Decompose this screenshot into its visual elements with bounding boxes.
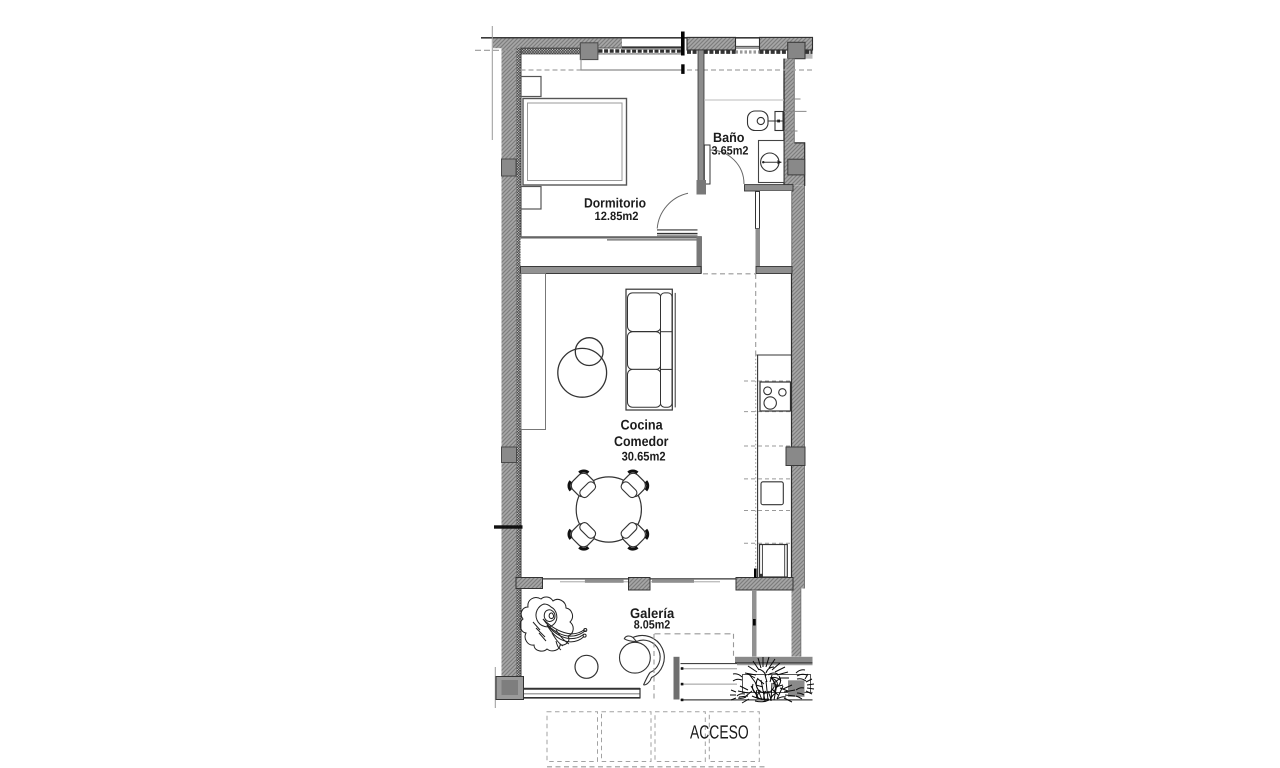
svg-text:Comedor: Comedor xyxy=(614,433,669,449)
svg-text:8.05m2: 8.05m2 xyxy=(634,617,671,631)
svg-text:ACCESO: ACCESO xyxy=(690,723,749,744)
svg-text:Cocina: Cocina xyxy=(621,416,663,432)
svg-text:30.65m2: 30.65m2 xyxy=(622,449,666,463)
svg-text:12.85m2: 12.85m2 xyxy=(595,209,639,223)
svg-text:3.65m2: 3.65m2 xyxy=(712,144,749,158)
